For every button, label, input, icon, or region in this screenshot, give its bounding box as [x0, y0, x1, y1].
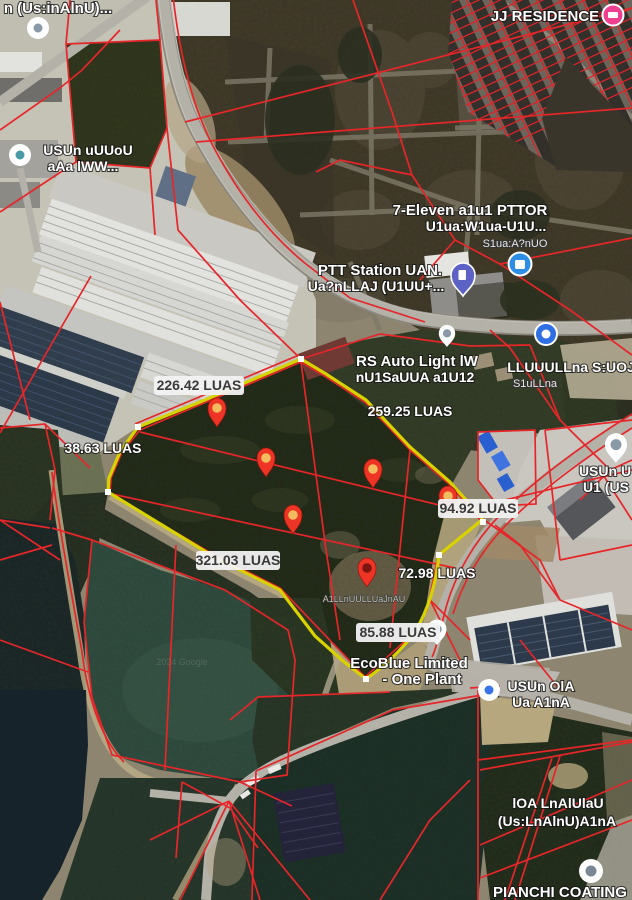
svg-text:259.25 LUAS: 259.25 LUAS	[368, 403, 453, 419]
svg-text:85.88 LUAS: 85.88 LUAS	[359, 624, 436, 640]
svg-text:7-Eleven a1u1 PTTOR: 7-Eleven a1u1 PTTOR	[393, 202, 548, 219]
svg-text:94.92 LUAS: 94.92 LUAS	[439, 500, 516, 516]
svg-text:aAa lWW...: aAa lWW...	[48, 158, 119, 174]
svg-text:321.03 LUAS: 321.03 LUAS	[196, 552, 281, 568]
svg-text:nU1SaUUA a1U12: nU1SaUUA a1U12	[356, 369, 475, 385]
svg-text:S1uLLna: S1uLLna	[513, 378, 558, 390]
svg-text:A1LLnUULLUaJnAU: A1LLnUULLUaJnAU	[323, 594, 406, 604]
svg-text:lOA LnAlUlaU: lOA LnAlUlaU	[512, 795, 603, 811]
svg-text:USUn OlA: USUn OlA	[508, 678, 575, 694]
svg-text:JJ RESIDENCE: JJ RESIDENCE	[491, 8, 599, 25]
svg-text:(Us:LnAlnU)A1nA: (Us:LnAlnU)A1nA	[498, 813, 616, 829]
svg-text:2024 Google: 2024 Google	[156, 657, 208, 667]
svg-text:38.63 LUAS: 38.63 LUAS	[64, 440, 141, 456]
svg-text:USUn uUUoU: USUn uUUoU	[43, 142, 132, 158]
svg-text:n (Us:inAlnU)...: n (Us:inAlnU)...	[4, 0, 112, 17]
svg-text:EcoBlue Limited: EcoBlue Limited	[350, 655, 468, 672]
svg-text:Ua?nLLAJ (U1UU+...: Ua?nLLAJ (U1UU+...	[308, 278, 445, 294]
svg-text:72.98 LUAS: 72.98 LUAS	[398, 565, 475, 581]
svg-text:PIANCHI COATING: PIANCHI COATING	[493, 884, 627, 900]
svg-text:LLUUULLna S:UOJ: LLUUULLna S:UOJ	[507, 359, 632, 375]
svg-text:226.42 LUAS: 226.42 LUAS	[157, 377, 242, 393]
svg-text:S1ua:A?nUO: S1ua:A?nUO	[483, 238, 548, 250]
svg-text:RS Auto Light lW: RS Auto Light lW	[356, 353, 479, 370]
svg-text:U1 (US: U1 (US	[583, 479, 629, 495]
svg-text:U1ua:W1ua-U1U...: U1ua:W1ua-U1U...	[426, 218, 547, 234]
svg-text:- One Plant: - One Plant	[382, 671, 461, 688]
svg-text:Ua A1nA: Ua A1nA	[512, 694, 570, 710]
svg-text:PTT Station UAN.: PTT Station UAN.	[318, 262, 442, 279]
svg-text:USUn U: USUn U	[579, 463, 631, 479]
